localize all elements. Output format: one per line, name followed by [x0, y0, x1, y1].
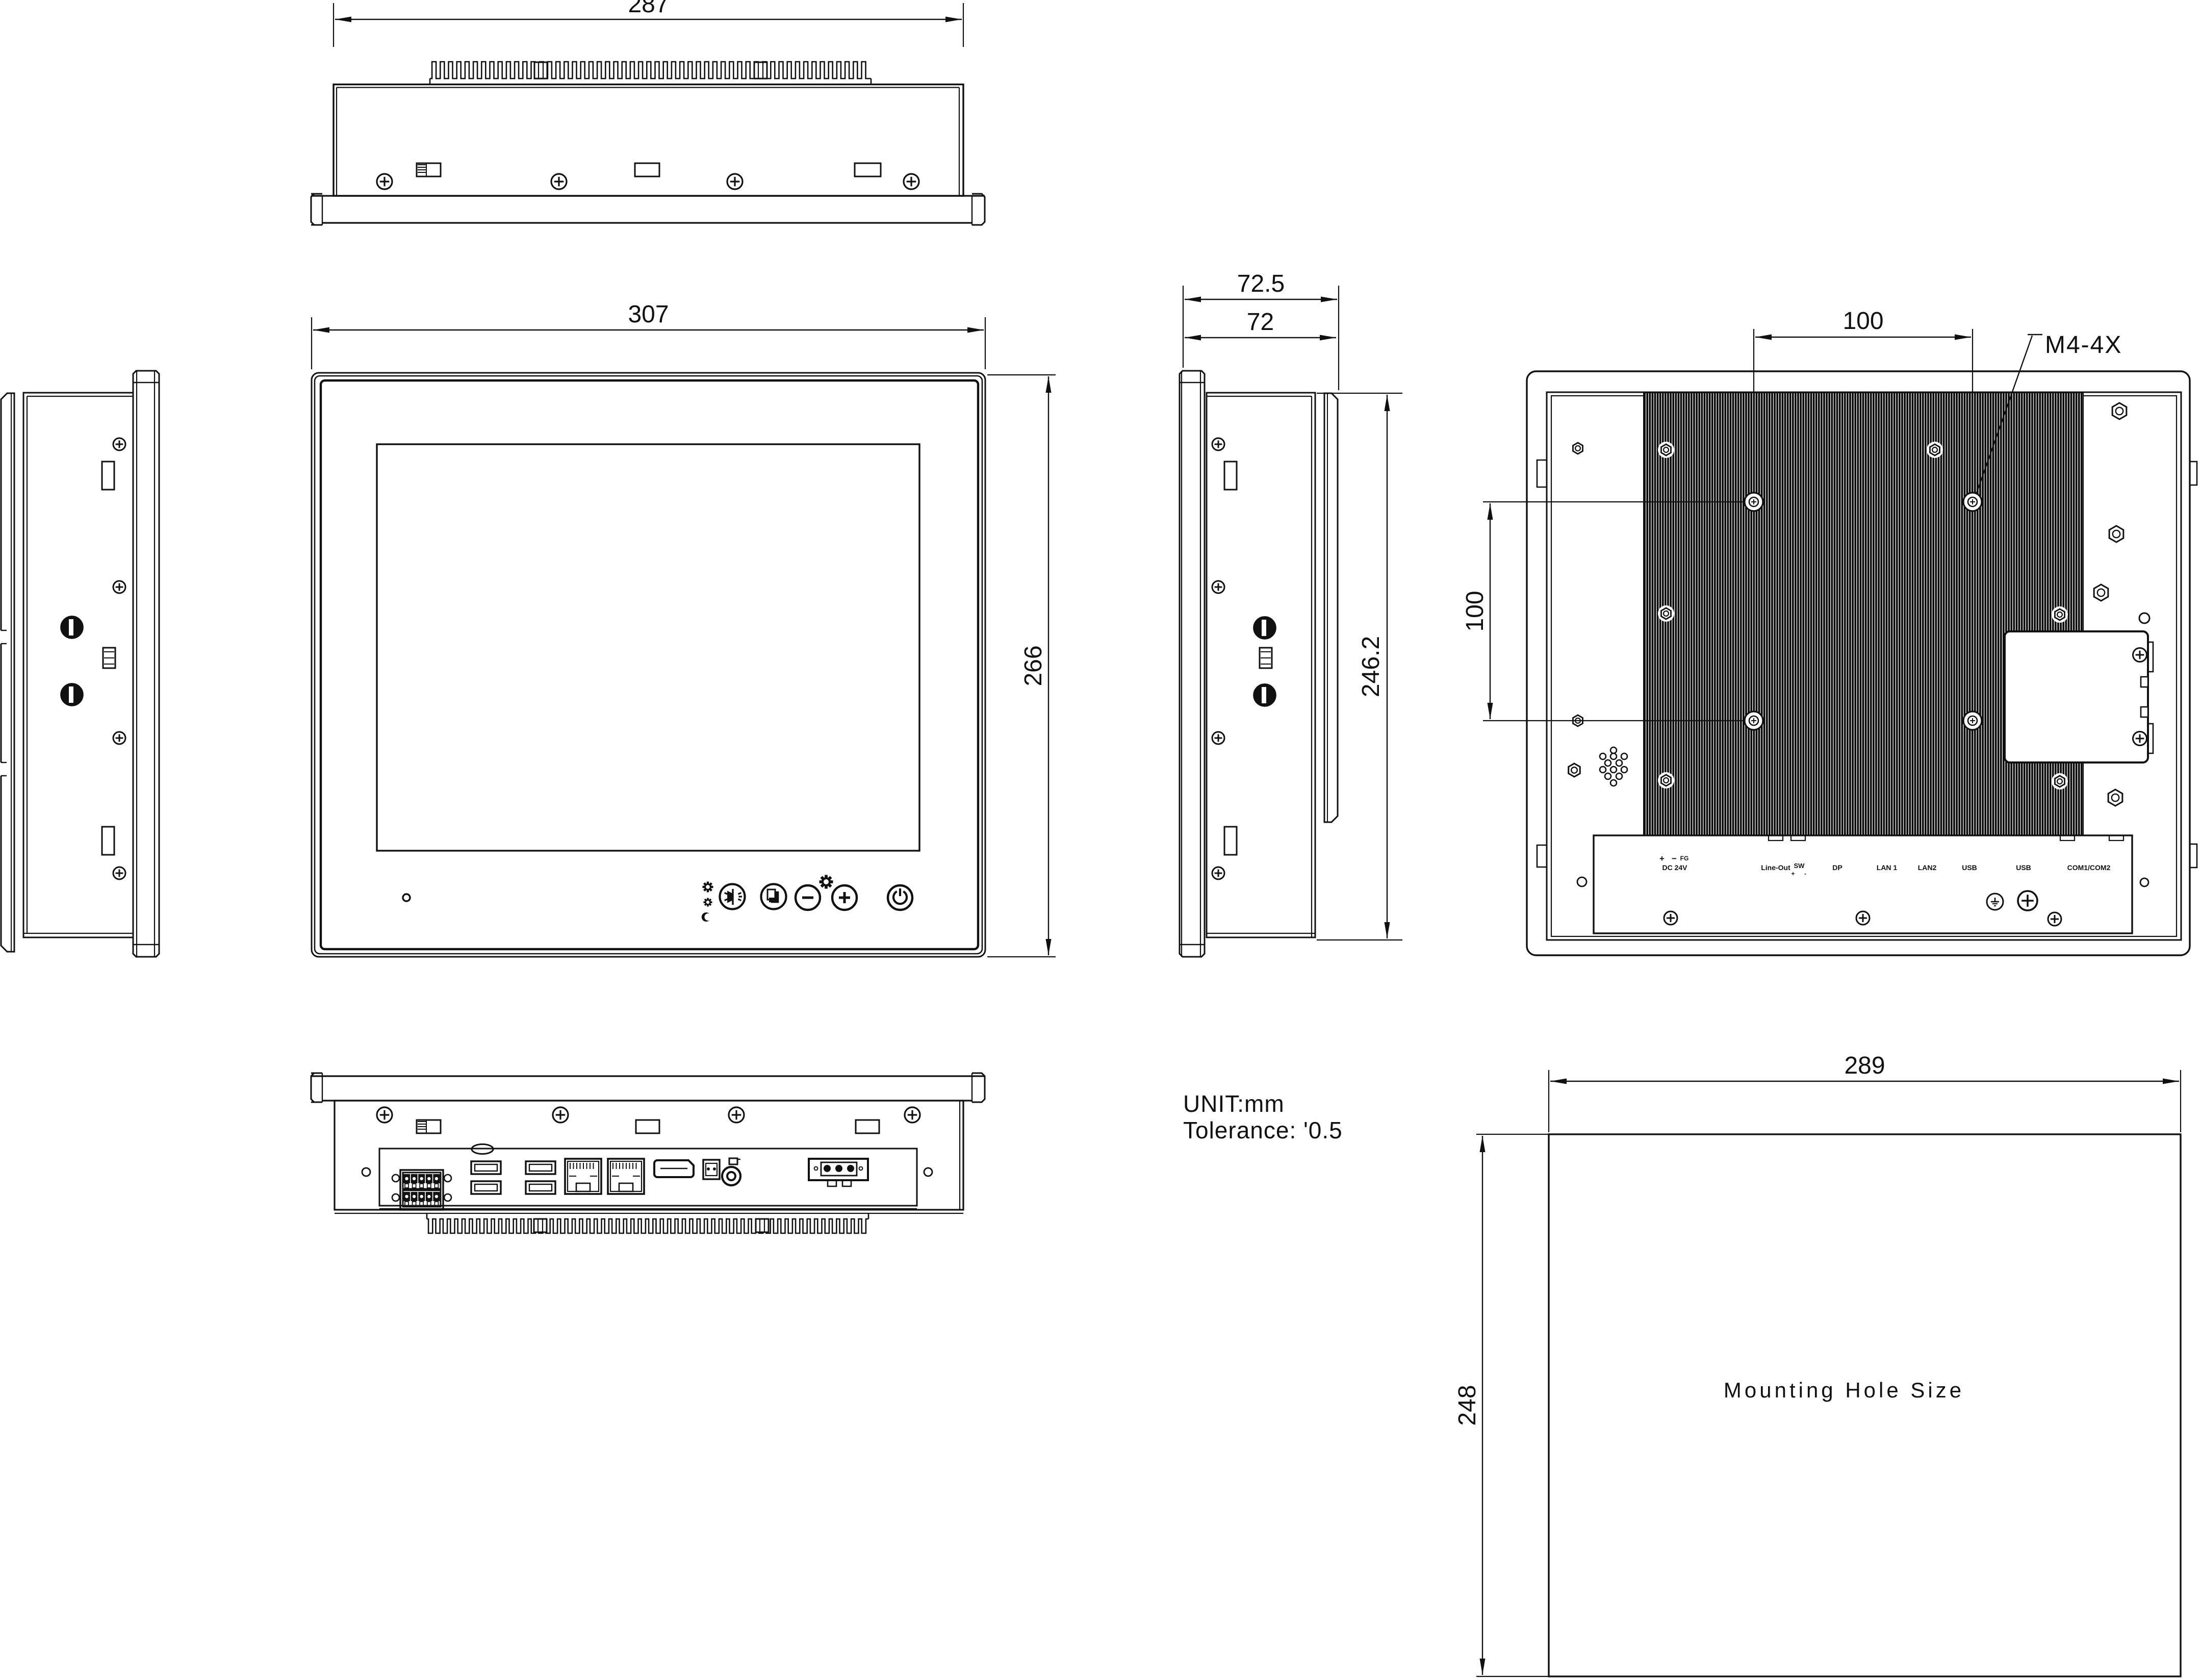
svg-text:248: 248	[1454, 1385, 1481, 1426]
svg-text:307: 307	[628, 301, 669, 328]
svg-text:−: −	[1672, 854, 1677, 863]
svg-text:DP: DP	[1832, 863, 1842, 872]
svg-text:USB: USB	[2016, 863, 2031, 872]
svg-text:Tolerance: ʹ0.5: Tolerance: ʹ0.5	[1183, 1117, 1343, 1143]
svg-text:+: +	[1659, 854, 1665, 863]
svg-text:DC 24V: DC 24V	[1662, 863, 1687, 872]
svg-text:Mounting Hole Size: Mounting Hole Size	[1724, 1378, 1964, 1402]
svg-text:FG: FG	[1680, 855, 1689, 862]
svg-text:LAN2: LAN2	[1918, 863, 1937, 872]
svg-text:72: 72	[1247, 309, 1274, 336]
svg-text:UNIT:mm: UNIT:mm	[1183, 1090, 1285, 1117]
svg-text:M4-4X: M4-4X	[2045, 332, 2122, 359]
svg-text:246.2: 246.2	[1358, 636, 1385, 697]
svg-text:100: 100	[1842, 308, 1883, 335]
svg-text:72.5: 72.5	[1237, 270, 1285, 297]
svg-text:SW: SW	[1794, 862, 1805, 870]
svg-text:LAN 1: LAN 1	[1877, 863, 1898, 872]
svg-text:+: +	[1791, 870, 1795, 877]
svg-text:-: -	[1804, 870, 1806, 877]
svg-text:100: 100	[1462, 591, 1489, 631]
svg-text:COM1/COM2: COM1/COM2	[2067, 863, 2111, 872]
svg-text:USB: USB	[1962, 863, 1977, 872]
svg-text:289: 289	[1844, 1052, 1885, 1079]
svg-text:266: 266	[1020, 645, 1047, 686]
svg-text:287: 287	[628, 0, 669, 18]
svg-text:Line-Out: Line-Out	[1761, 863, 1790, 872]
